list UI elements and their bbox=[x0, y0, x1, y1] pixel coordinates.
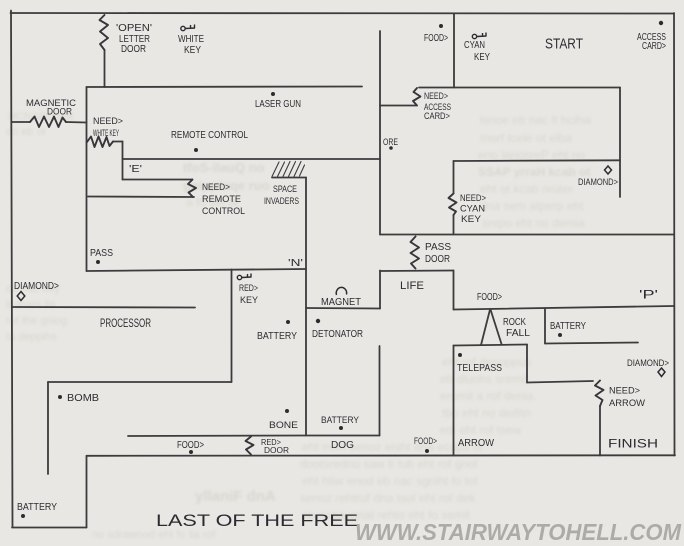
svg-text:'N': 'N' bbox=[288, 257, 303, 269]
svg-text:lsnoe eb nac tl hcihw: lsnoe eb nac tl hcihw bbox=[480, 113, 592, 127]
svg-text:'P': 'P' bbox=[639, 290, 658, 302]
svg-text:SPACE: SPACE bbox=[273, 184, 297, 195]
svg-text:SSAP yrraH kcab ot: SSAP yrraH kcab ot bbox=[478, 165, 591, 179]
svg-text:TELEPASS: TELEPASS bbox=[457, 362, 502, 374]
svg-text:FINISH: FINISH bbox=[608, 439, 658, 451]
svg-text:KEY: KEY bbox=[184, 45, 201, 56]
svg-text:no sdrawnod eht fo lla rof: no sdrawnod eht fo lla rof bbox=[92, 529, 216, 541]
svg-text:START: START bbox=[545, 36, 583, 53]
svg-text:DIAMOND>: DIAMOND> bbox=[578, 177, 618, 188]
svg-text:'E': 'E' bbox=[129, 163, 142, 175]
svg-text:BOMB: BOMB bbox=[67, 392, 99, 404]
svg-text:BATTERY: BATTERY bbox=[550, 321, 586, 332]
svg-text:KEY: KEY bbox=[474, 52, 490, 63]
svg-text:FOOD>: FOOD> bbox=[477, 291, 502, 303]
svg-text:BATTERY: BATTERY bbox=[321, 415, 360, 426]
svg-text:FALL: FALL bbox=[506, 328, 530, 339]
svg-text:CARD>: CARD> bbox=[424, 111, 450, 122]
svg-text:WHITE: WHITE bbox=[178, 34, 204, 45]
svg-text:PROCESSOR: PROCESSOR bbox=[100, 318, 151, 330]
svg-text:RED>: RED> bbox=[239, 283, 258, 294]
svg-text:morf tcele ot elba: morf tcele ot elba bbox=[480, 131, 572, 145]
svg-text:PASS: PASS bbox=[425, 241, 451, 253]
svg-text:NEED>: NEED> bbox=[460, 193, 486, 204]
svg-text:ROCK: ROCK bbox=[503, 317, 526, 328]
svg-text:CYAN: CYAN bbox=[460, 204, 485, 215]
svg-text:rof the gniog: rof the gniog bbox=[6, 315, 67, 327]
svg-text:eht morf senoz eniht dna ecaps: eht morf senoz eniht dna ecaps ot bbox=[302, 440, 483, 454]
svg-text:KEY: KEY bbox=[461, 214, 482, 225]
svg-text:senoz rehtruf dna tsol eht rof: senoz rehtruf dna tsol eht rof dek bbox=[300, 491, 476, 505]
svg-text:CYAN: CYAN bbox=[464, 40, 485, 51]
svg-text:DETONATOR: DETONATOR bbox=[312, 329, 363, 340]
svg-text:BATTERY: BATTERY bbox=[17, 502, 57, 513]
svg-text:FOOD>: FOOD> bbox=[177, 440, 204, 451]
svg-text:MAGNET: MAGNET bbox=[321, 296, 362, 308]
svg-text:WHITE KEY: WHITE KEY bbox=[93, 128, 119, 139]
svg-text:NEED>: NEED> bbox=[424, 91, 448, 102]
svg-text:LASER GUN: LASER GUN bbox=[255, 98, 301, 110]
svg-text:LAST OF THE FREE: LAST OF THE FREE bbox=[156, 512, 358, 530]
svg-text:dootsrednu saw ti tub eht rof: dootsrednu saw ti tub eht rof gnol bbox=[300, 457, 477, 471]
svg-text:eht htiw enod eb nac sgniht fo: eht htiw enod eb nac sgniht fo tol bbox=[302, 474, 477, 488]
svg-text:DIAMOND>: DIAMOND> bbox=[14, 281, 59, 292]
svg-text:DOG: DOG bbox=[331, 439, 354, 451]
svg-text:ti dnats lla: ti dnats lla bbox=[6, 299, 56, 311]
svg-text:CONTROL: CONTROL bbox=[202, 206, 245, 217]
svg-text:CARD>: CARD> bbox=[642, 41, 666, 52]
svg-text:tbo eht no deifitn: tbo eht no deifitn bbox=[442, 406, 531, 420]
svg-text:yllaniF dnA: yllaniF dnA bbox=[195, 488, 276, 505]
svg-text:ta deppihs: ta deppihs bbox=[6, 331, 57, 343]
svg-text:INVADERS: INVADERS bbox=[264, 196, 299, 207]
svg-text:edi eht rof tsew: edi eht rof tsew bbox=[440, 423, 522, 437]
svg-text:KEY: KEY bbox=[240, 295, 259, 306]
svg-text:FOOD>: FOOD> bbox=[414, 436, 437, 447]
svg-text:BATTERY: BATTERY bbox=[257, 331, 297, 342]
svg-text:NEED>: NEED> bbox=[202, 182, 230, 193]
svg-text:ARROW: ARROW bbox=[609, 398, 645, 409]
svg-text:DOOR: DOOR bbox=[47, 107, 72, 118]
svg-text:REMOTE: REMOTE bbox=[202, 194, 241, 205]
svg-text:DOOR: DOOR bbox=[121, 43, 146, 55]
svg-text:PASS: PASS bbox=[90, 247, 113, 259]
svg-text:WWW.STAIRWAYTOHELL.COM: WWW.STAIRWAYTOHELL.COM bbox=[355, 519, 682, 545]
svg-text:LIFE: LIFE bbox=[400, 280, 424, 292]
svg-text:NEED>: NEED> bbox=[93, 116, 123, 127]
svg-text:ARROW: ARROW bbox=[458, 437, 494, 449]
svg-text:BONE: BONE bbox=[269, 420, 298, 431]
svg-text:DOOR: DOOR bbox=[264, 445, 289, 455]
svg-text:DIAMOND>: DIAMOND> bbox=[627, 358, 669, 369]
svg-text:dna sem atperp eht: dna sem atperp eht bbox=[480, 199, 584, 213]
svg-text:REMOTE CONTROL: REMOTE CONTROL bbox=[171, 129, 248, 141]
svg-text:NEED>: NEED> bbox=[609, 386, 640, 397]
svg-text:ORE: ORE bbox=[383, 137, 398, 148]
svg-text:FOOD>: FOOD> bbox=[424, 32, 448, 44]
svg-text:tfoS-ilauQ no: tfoS-ilauQ no bbox=[183, 160, 265, 175]
svg-text:DOOR: DOOR bbox=[425, 253, 450, 265]
svg-text:eht ot kcab nruter: eht ot kcab nruter bbox=[480, 182, 573, 196]
svg-text:srepo eht no demia: srepo eht no demia bbox=[482, 216, 585, 230]
